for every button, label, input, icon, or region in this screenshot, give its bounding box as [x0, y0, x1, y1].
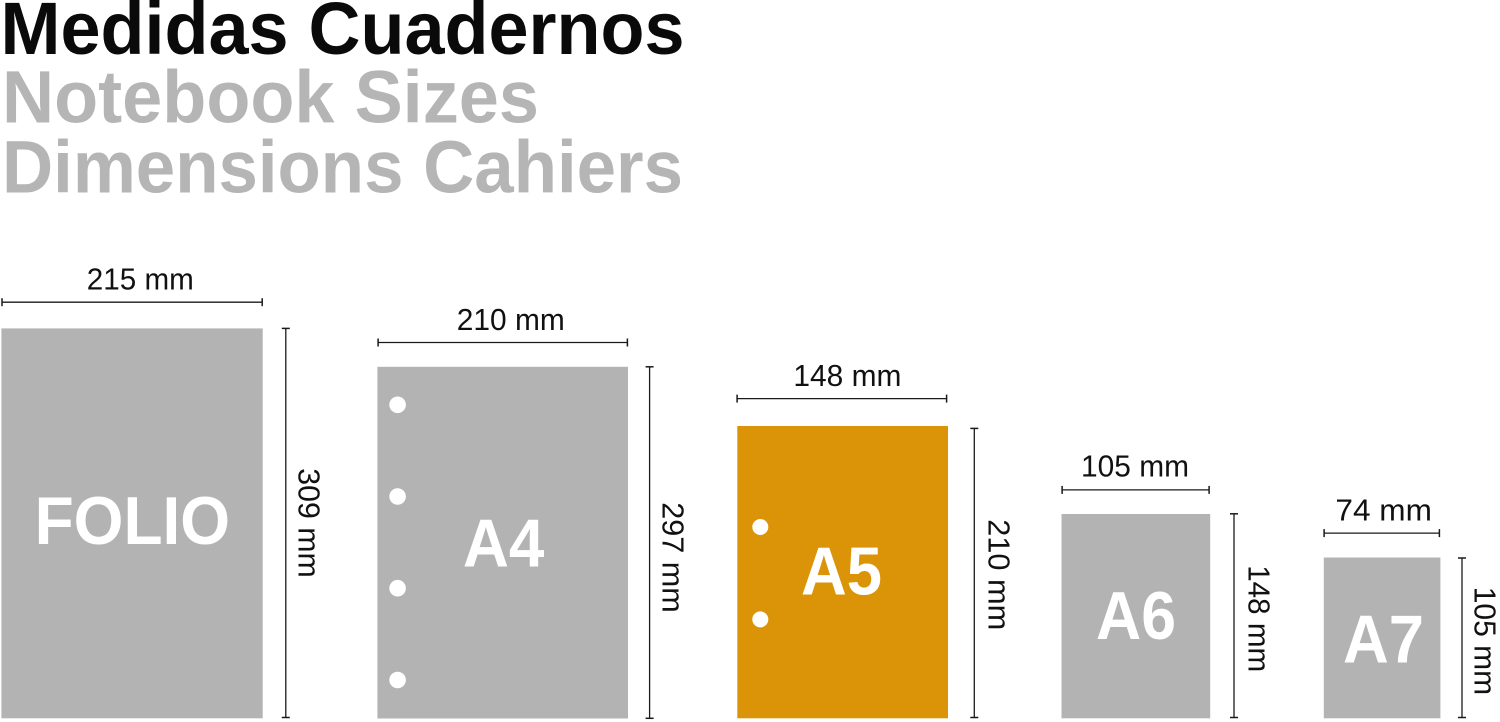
svg-text:210 mm: 210 mm — [982, 519, 1017, 630]
svg-text:A6: A6 — [1096, 578, 1176, 654]
svg-text:Dimensions Cahiers: Dimensions Cahiers — [2, 126, 683, 209]
svg-text:148 mm: 148 mm — [1241, 565, 1276, 672]
svg-text:215 mm: 215 mm — [87, 262, 194, 297]
svg-text:210 mm: 210 mm — [457, 302, 565, 337]
svg-text:A5: A5 — [801, 534, 882, 610]
svg-text:A4: A4 — [463, 506, 545, 582]
svg-text:FOLIO: FOLIO — [35, 483, 231, 559]
svg-text:74 mm: 74 mm — [1335, 493, 1432, 528]
svg-text:105 mm: 105 mm — [1468, 587, 1500, 696]
svg-text:148 mm: 148 mm — [793, 358, 901, 393]
svg-text:297 mm: 297 mm — [655, 502, 690, 613]
svg-text:A7: A7 — [1343, 602, 1424, 678]
svg-text:105 mm: 105 mm — [1081, 448, 1189, 483]
svg-text:309 mm: 309 mm — [292, 468, 327, 578]
